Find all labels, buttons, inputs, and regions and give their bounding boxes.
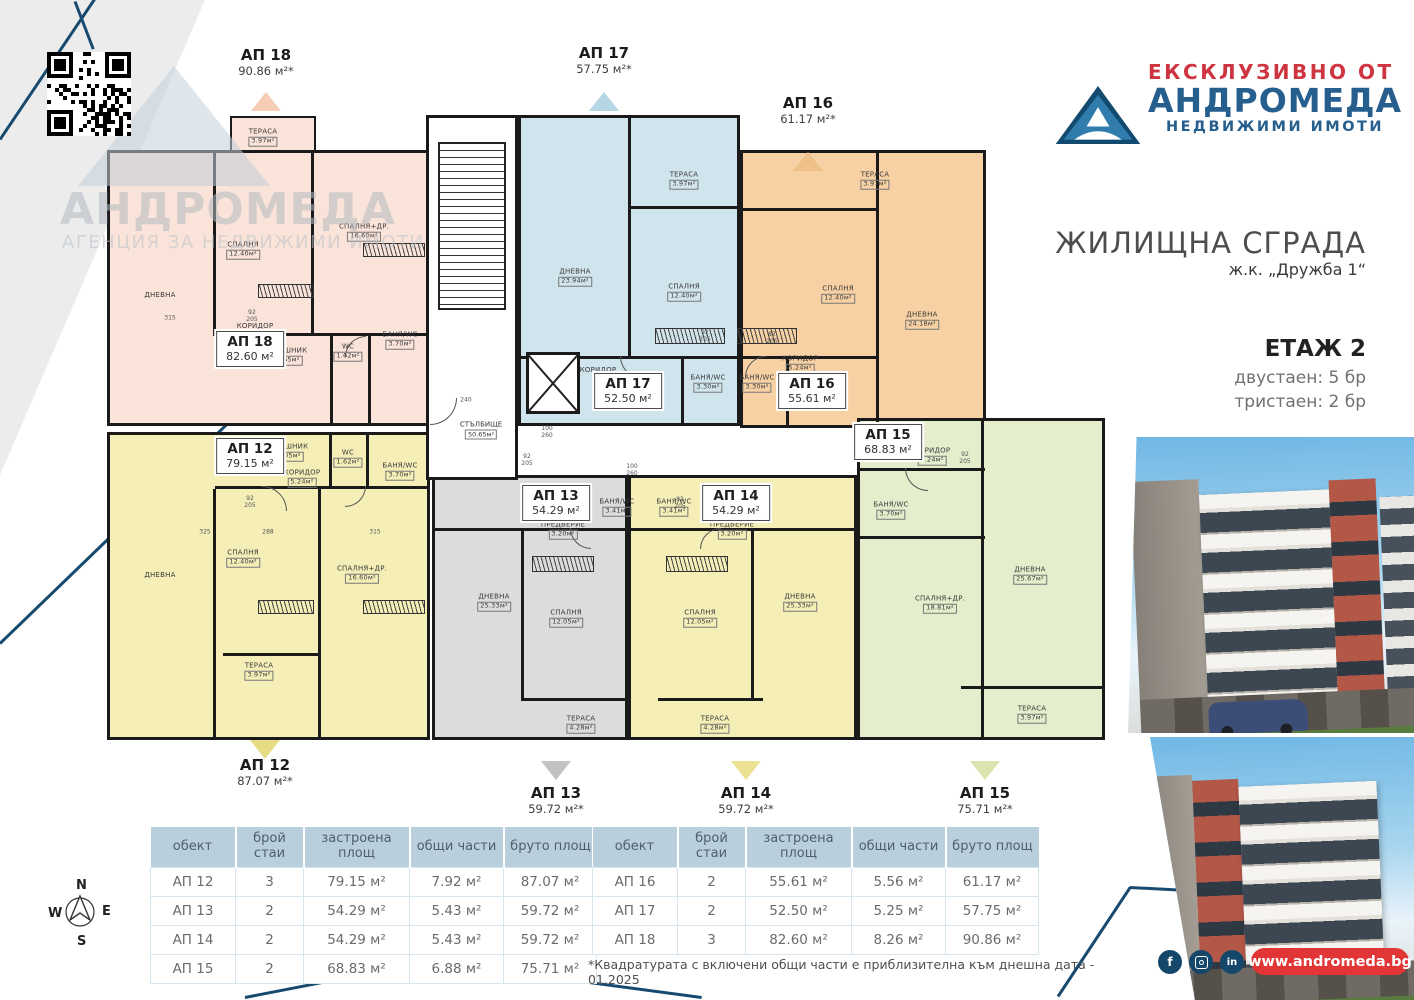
stairs-icon <box>438 142 506 310</box>
table-cell: 3 <box>678 926 746 955</box>
social-icons: f in <box>1158 950 1244 974</box>
table-cell: 59.72 м² <box>504 897 597 926</box>
interior-wall <box>630 206 740 209</box>
interior-wall <box>223 653 321 656</box>
room-label: СПАЛНЯ12.40м² <box>226 241 260 260</box>
room-label: ДНЕВНА <box>144 571 175 579</box>
apartment-outer-label-ap16: АП 1661.17 м²* <box>780 94 836 127</box>
room-label: СПАЛНЯ+ДР.18.81м² <box>915 595 965 614</box>
unit-count-three-room: тристаен: 2 бр <box>1234 392 1366 412</box>
interior-wall <box>981 418 984 539</box>
apartment-inner-label-ap15: АП 1568.83 м² <box>854 424 922 460</box>
table-cell: 7.92 м² <box>410 868 504 897</box>
room-label: ДНЕВНА25.67м² <box>1013 566 1047 585</box>
dimension-label: 100 260 <box>541 425 552 439</box>
room-label: СПАЛНЯ12.05м² <box>549 609 583 628</box>
room-label: СПАЛНЯ12.40м² <box>667 283 701 302</box>
table-cell: 90.86 м² <box>946 926 1039 955</box>
agency-logo-triangle-icon <box>1054 84 1142 146</box>
interior-wall <box>751 531 754 701</box>
interior-wall <box>961 686 1105 689</box>
compass: N E S W <box>48 878 112 950</box>
room-label: WC1.62м² <box>333 449 362 468</box>
table-cell: АП 15 <box>151 955 236 984</box>
wardrobe-hatch <box>363 243 425 257</box>
table-cell: 87.07 м² <box>504 868 597 897</box>
table-cell: 55.61 м² <box>746 868 852 897</box>
room-label: СПАЛНЯ12.40м² <box>821 285 855 304</box>
apartment-outer-label-ap17: АП 1757.75 м²* <box>576 44 632 77</box>
table-cell: 2 <box>236 897 304 926</box>
qr-code[interactable] <box>47 52 131 136</box>
apartment-inner-label-ap18: АП 1882.60 м² <box>216 331 284 367</box>
apartment-outer-label-ap12: АП 1287.07 м²* <box>237 756 293 789</box>
agency-subtitle: НЕДВИЖИМИ ИМОТИ <box>1148 119 1402 135</box>
wardrobe-hatch <box>258 600 314 614</box>
table-header-row: обектброй стаизастроена площобщи частибр… <box>151 827 597 868</box>
apartment-inner-label-ap16: АП 1655.61 м² <box>778 373 846 409</box>
table-header-cell: обект <box>151 827 236 868</box>
apartment-outer-label-ap13: АП 1359.72 м²* <box>528 784 584 817</box>
wardrobe-hatch <box>363 600 425 614</box>
apartment-inner-label-ap12: АП 1279.15 м² <box>216 438 284 474</box>
triangle-marker-ap13 <box>541 761 571 780</box>
table-cell: АП 17 <box>593 897 678 926</box>
website-link[interactable]: www.andromeda.bg <box>1251 948 1409 975</box>
interior-wall <box>740 208 878 211</box>
room-label: ТЕРАСА3.97м² <box>669 171 698 190</box>
interior-wall <box>368 336 371 425</box>
room-label: БАНЯ/WC3.30м² <box>739 374 774 393</box>
triangle-marker-ap12 <box>250 740 280 759</box>
room-label: БАНЯ/WC3.41м² <box>599 498 634 517</box>
room-label: БАНЯ/WC3.30м² <box>690 374 725 393</box>
instagram-icon[interactable] <box>1189 950 1213 974</box>
table-cell: 52.50 м² <box>746 897 852 926</box>
dimension-label: 92 205 <box>244 495 255 509</box>
table-row: АП 12379.15 м²7.92 м²87.07 м² <box>151 868 597 897</box>
interior-wall <box>213 489 216 740</box>
table-cell: АП 12 <box>151 868 236 897</box>
table-header-row: обектброй стаизастроена площобщи частибр… <box>593 827 1039 868</box>
dimension-label: 82 205 <box>674 496 685 510</box>
table-cell: АП 14 <box>151 926 236 955</box>
stairwell-label: СТЪЛБИЩЕ50.65м² <box>460 421 502 440</box>
interior-wall <box>857 536 985 539</box>
room-label: ДНЕВНА23.94м² <box>558 268 592 287</box>
table-cell: 3 <box>236 868 304 897</box>
table-cell: АП 13 <box>151 897 236 926</box>
table-cell: 5.25 м² <box>852 897 946 926</box>
room-label: ДНЕВНА <box>144 291 175 299</box>
room-label: ТЕРАСА4.28м² <box>700 715 729 734</box>
area-table-right: обектброй стаизастроена площобщи частибр… <box>592 827 1039 955</box>
table-cell: 2 <box>678 868 746 897</box>
table-cell: 6.88 м² <box>410 955 504 984</box>
unit-count-two-room: двустаен: 5 бр <box>1234 368 1366 388</box>
dimension-label: 240 <box>460 396 471 403</box>
room-label: БАНЯ/WC3.70м² <box>873 501 908 520</box>
room-label: ТЕРАСА3.97м² <box>860 171 889 190</box>
elevator-icon <box>526 352 580 414</box>
table-header-cell: застроена площ <box>746 827 852 868</box>
room-label: БАНЯ/WC3.70м² <box>382 331 417 350</box>
table-cell: АП 18 <box>593 926 678 955</box>
table-row: АП 13254.29 м²5.43 м²59.72 м² <box>151 897 597 926</box>
interior-wall <box>432 528 628 531</box>
interior-wall <box>215 486 430 489</box>
table-header-cell: общи части <box>852 827 946 868</box>
area-table-left: обектброй стаизастроена площобщи частибр… <box>150 827 597 984</box>
table-header-cell: бруто площ <box>504 827 597 868</box>
interior-wall <box>366 432 369 488</box>
room-label: ДНЕВНА25.33м² <box>477 593 511 612</box>
dimension-label: 92 205 <box>521 453 532 467</box>
table-cell: 8.26 м² <box>852 926 946 955</box>
apartment-outer-label-ap18: АП 1890.86 м²* <box>238 46 294 79</box>
triangle-marker-ap15 <box>970 761 1000 780</box>
room-label: СПАЛНЯ+ДР.16.60м² <box>339 223 389 242</box>
agency-logo: АНДРОМЕДА НЕДВИЖИМИ ИМОТИ <box>1054 84 1402 146</box>
dimension-label: 82 205 <box>766 331 777 345</box>
table-cell: 5.43 м² <box>410 897 504 926</box>
table-cell: 2 <box>236 955 304 984</box>
table-header-cell: обект <box>593 827 678 868</box>
table-row: АП 15268.83 м²6.88 м²75.71 м² <box>151 955 597 984</box>
dimension-label: 100 260 <box>626 463 637 477</box>
dimension-label: 315 <box>369 528 380 535</box>
building-location: ж.к. „Дружба 1“ <box>1229 260 1366 279</box>
apartment-outer-label-ap15: АП 1575.71 м²* <box>957 784 1013 817</box>
table-cell: 68.83 м² <box>304 955 410 984</box>
room-label: КОРИДОР5.24м² <box>284 469 321 488</box>
table-cell: 54.29 м² <box>304 897 410 926</box>
table-cell: 54.29 м² <box>304 926 410 955</box>
wardrobe-hatch <box>258 284 314 298</box>
apartment-region-ap16 <box>740 150 986 428</box>
room-label: ТЕРАСА3.97м² <box>248 128 277 147</box>
table-cell: 75.71 м² <box>504 955 597 984</box>
interior-wall <box>628 115 631 358</box>
apartment-inner-label-ap17: АП 1752.50 м² <box>594 373 662 409</box>
table-cell: 5.43 м² <box>410 926 504 955</box>
table-row: АП 18382.60 м²8.26 м²90.86 м² <box>593 926 1039 955</box>
compass-north-label: N <box>76 878 87 893</box>
table-cell: 2 <box>236 926 304 955</box>
wardrobe-hatch <box>532 556 594 572</box>
compass-arrow-icon <box>60 892 100 932</box>
apartment-inner-label-ap14: АП 1454.29 м² <box>702 485 770 521</box>
table-row: АП 16255.61 м²5.56 м²61.17 м² <box>593 868 1039 897</box>
table-cell: 5.56 м² <box>852 868 946 897</box>
dimension-label: 92 205 <box>959 451 970 465</box>
dimension-label: 288 <box>262 528 273 535</box>
room-label: БАНЯ/WC3.70м² <box>382 462 417 481</box>
room-label: ТЕРАСА3.97м² <box>1017 705 1046 724</box>
facebook-icon[interactable]: f <box>1158 950 1182 974</box>
room-label: ДНЕВНА24.18м² <box>905 311 939 330</box>
apartment-inner-label-ap13: АП 1354.29 м² <box>522 485 590 521</box>
agency-name: АНДРОМЕДА <box>1148 84 1402 119</box>
footnote: *Квадратурата с включени общи части е пр… <box>588 957 1118 987</box>
interior-wall <box>329 432 332 488</box>
interior-wall <box>213 150 216 336</box>
table-header-cell: брой стаи <box>236 827 304 868</box>
interior-wall <box>981 536 984 740</box>
poster-root: АНДРОМЕДА АГЕНЦИЯ ЗА НЕДВИЖИМИ ИМОТИ ТЕР… <box>0 0 1414 1000</box>
triangle-marker-ap16 <box>793 152 823 171</box>
triangle-marker-ap14 <box>731 761 761 780</box>
compass-east-label: E <box>102 904 111 919</box>
table-header-cell: общи части <box>410 827 504 868</box>
dimension-label: 92 205 <box>246 309 257 323</box>
room-label: ТЕРАСА4.28м² <box>566 715 595 734</box>
dimension-label: 315 <box>164 314 175 321</box>
room-label: ПРЕДВЕРИЕ3.20м² <box>541 521 585 540</box>
interior-wall <box>658 698 763 701</box>
interior-wall <box>521 531 524 701</box>
table-row: АП 17252.50 м²5.25 м²57.75 м² <box>593 897 1039 926</box>
floor-label: ЕТАЖ 2 <box>1265 336 1366 362</box>
table-cell: 82.60 м² <box>746 926 852 955</box>
table-cell: 57.75 м² <box>946 897 1039 926</box>
table-header-cell: брой стаи <box>678 827 746 868</box>
room-label: WC1.62м² <box>333 343 362 362</box>
dimension-label: 325 <box>199 528 210 535</box>
table-cell: 79.15 м² <box>304 868 410 897</box>
wardrobe-hatch <box>655 328 725 344</box>
interior-wall <box>311 150 314 336</box>
building-title: ЖИЛИЩНА СГРАДА <box>1055 226 1366 260</box>
table-cell: 59.72 м² <box>504 926 597 955</box>
room-label: СПАЛНЯ12.40м² <box>226 549 260 568</box>
table-row: АП 14254.29 м²5.43 м²59.72 м² <box>151 926 597 955</box>
interior-wall <box>681 356 684 426</box>
interior-wall <box>523 698 628 701</box>
room-label: ТЕРАСА3.97м² <box>244 662 273 681</box>
apartment-outer-label-ap14: АП 1459.72 м²* <box>718 784 774 817</box>
triangle-marker-ap18 <box>251 92 281 111</box>
compass-south-label: S <box>77 934 86 949</box>
room-label: ДНЕВНА25.33м² <box>783 593 817 612</box>
table-header-cell: застроена площ <box>304 827 410 868</box>
linkedin-icon[interactable]: in <box>1220 950 1244 974</box>
table-cell: 2 <box>678 897 746 926</box>
room-label: СПАЛНЯ+ДР.16.60м² <box>337 565 387 584</box>
table-cell: АП 16 <box>593 868 678 897</box>
interior-wall <box>318 489 321 740</box>
table-cell: 61.17 м² <box>946 868 1039 897</box>
wardrobe-hatch <box>666 556 728 572</box>
room-label: КОРИДОР5.24м² <box>782 355 819 374</box>
dimension-label: 92 205 <box>699 329 710 343</box>
interior-wall <box>876 150 879 428</box>
room-label: СПАЛНЯ12.05м² <box>683 609 717 628</box>
triangle-marker-ap17 <box>589 92 619 111</box>
room-label: ПРЕДВЕРИЕ3.20м² <box>710 521 754 540</box>
table-header-cell: бруто площ <box>946 827 1039 868</box>
